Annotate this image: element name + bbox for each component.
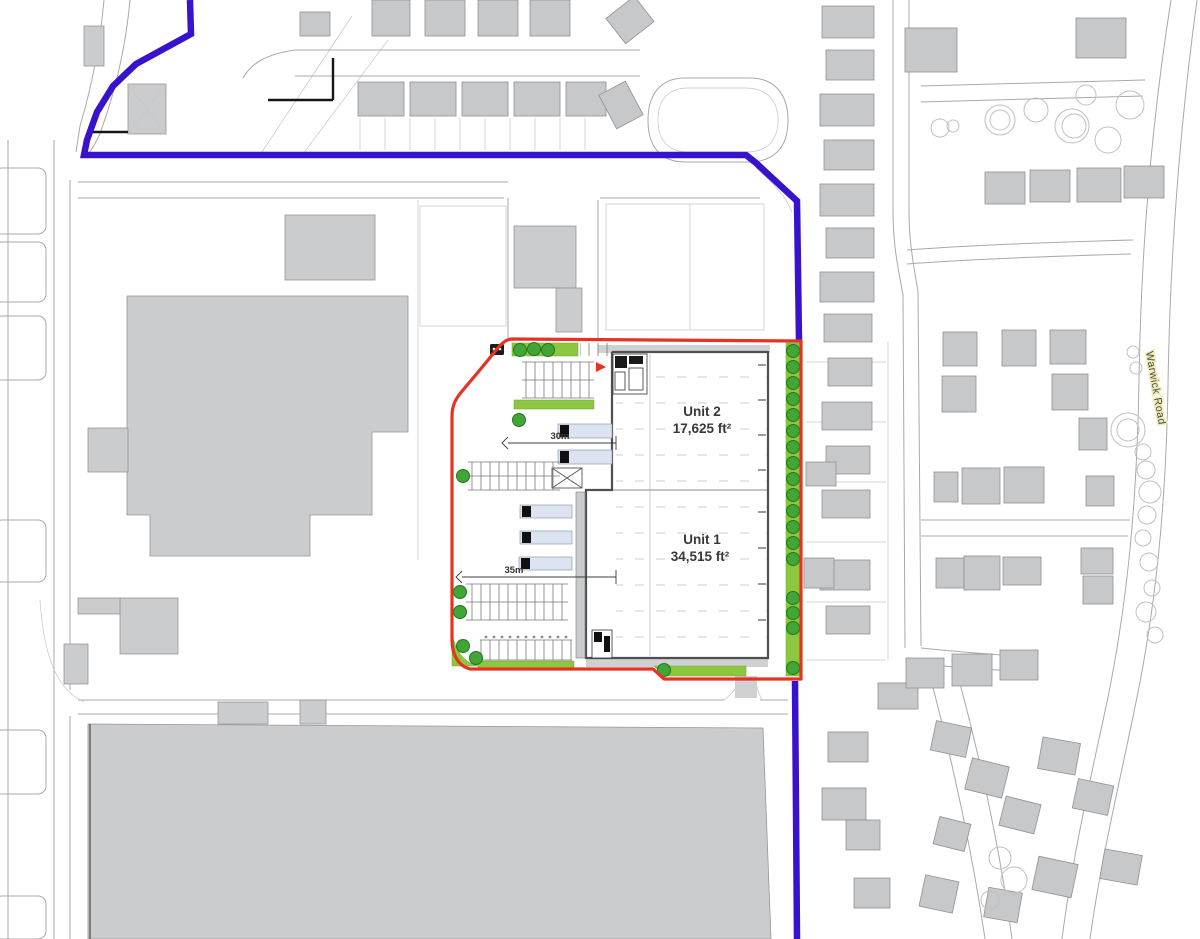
unit1-name-label: Unit 1 bbox=[683, 532, 721, 547]
dock-door-icon bbox=[522, 506, 531, 517]
unit2-area-label: 17,625 ft² bbox=[673, 421, 732, 436]
dock-wall bbox=[576, 492, 585, 658]
application-boundary-line-south bbox=[795, 681, 797, 939]
stair-core bbox=[613, 354, 647, 394]
application-boundary-line-north bbox=[84, 0, 799, 340]
dimension-label-35m: 35m bbox=[504, 565, 523, 576]
dimension-label-30m: 30m bbox=[550, 431, 569, 442]
unit2-name-label: Unit 2 bbox=[683, 404, 721, 419]
residential-houses-east bbox=[804, 6, 1164, 923]
bollards bbox=[485, 636, 568, 639]
site-plan-drawing: 30m 35m Unit 2 17,625 ft² Unit 1 34,515 … bbox=[0, 0, 1200, 939]
unit1-area-label: 34,515 ft² bbox=[671, 549, 730, 564]
dock-door-icon bbox=[560, 451, 569, 463]
dock-door-icon bbox=[522, 532, 531, 543]
plant-detail bbox=[592, 630, 612, 658]
road-name-label: Warwick Road bbox=[1143, 350, 1168, 425]
terraced-houses-north bbox=[300, 0, 654, 129]
site-plan-page: 30m 35m Unit 2 17,625 ft² Unit 1 34,515 … bbox=[0, 0, 1200, 939]
entrance-arrow-icon bbox=[596, 362, 606, 372]
